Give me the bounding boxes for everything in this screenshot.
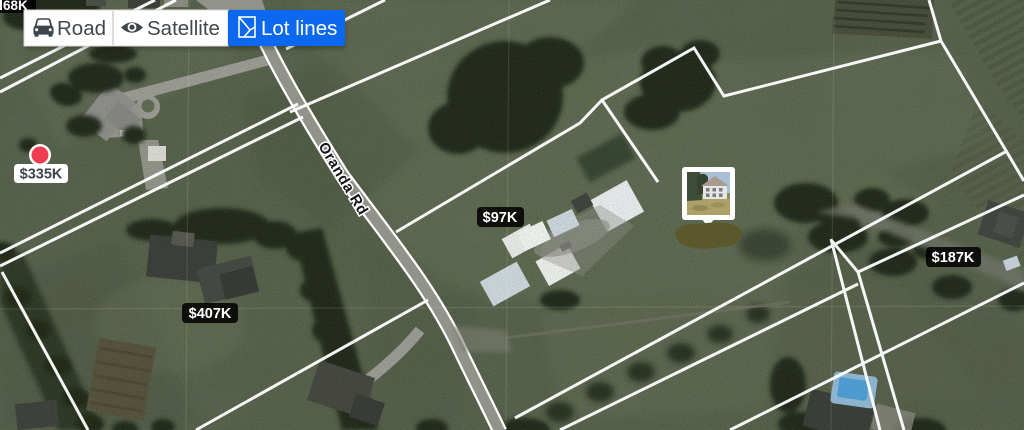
svg-text:Satellite: Satellite: [147, 17, 220, 40]
svg-text:Road: Road: [57, 17, 106, 40]
svg-text:$97K: $97K: [483, 210, 518, 226]
svg-text:Lot lines: Lot lines: [261, 17, 337, 40]
svg-text:$407K: $407K: [189, 306, 232, 322]
svg-text:$187K: $187K: [932, 250, 975, 266]
svg-text:$335K: $335K: [20, 167, 63, 183]
